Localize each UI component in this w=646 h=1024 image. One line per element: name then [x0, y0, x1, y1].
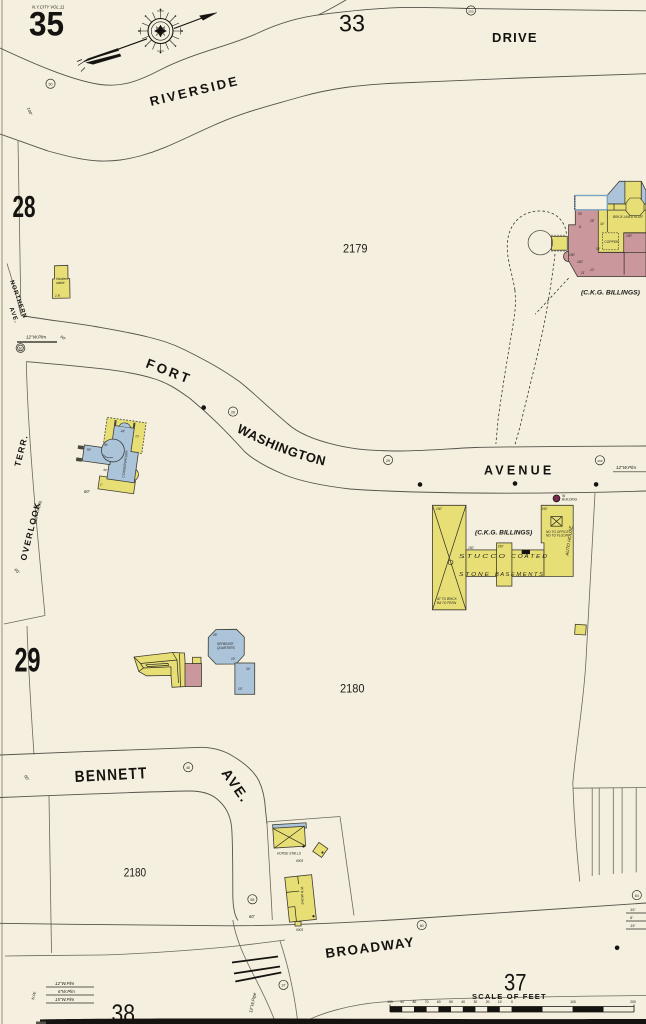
svg-text:35: 35 [29, 6, 64, 44]
svg-text:DRIVE: DRIVE [492, 30, 538, 45]
svg-text:2180: 2180 [340, 682, 365, 696]
svg-text:29: 29 [15, 642, 41, 680]
svg-text:28': 28' [589, 219, 595, 223]
svg-text:QUARTERS: QUARTERS [217, 646, 236, 650]
svg-text:10': 10' [231, 657, 236, 661]
svg-text:2179: 2179 [343, 242, 368, 256]
svg-text:6"W.Plm: 6"W.Plm [58, 989, 75, 994]
svg-text:12': 12' [590, 268, 595, 272]
svg-text:SCALE OF FEET: SCALE OF FEET [472, 992, 547, 1001]
svg-text:209: 209 [597, 459, 602, 463]
svg-text:10': 10' [238, 687, 243, 691]
svg-text:1 R: 1 R [55, 294, 61, 298]
svg-text:60': 60' [249, 914, 255, 919]
svg-text:150': 150' [468, 546, 474, 550]
svg-text:10: 10 [498, 1000, 502, 1004]
svg-text:150': 150' [436, 507, 442, 511]
svg-text:60: 60 [437, 1000, 441, 1004]
svg-text:0: 0 [511, 1000, 513, 1004]
svg-text:11': 11' [581, 271, 585, 275]
svg-text:50: 50 [49, 83, 53, 87]
svg-text:BA TO PENN: BA TO PENN [437, 601, 457, 605]
svg-text:COPPER: COPPER [604, 240, 619, 244]
svg-text:34': 34' [600, 222, 605, 226]
svg-text:12"W.Plm: 12"W.Plm [26, 335, 46, 340]
svg-text:6': 6' [630, 915, 633, 920]
svg-text:28': 28' [119, 429, 125, 434]
svg-text:40: 40 [186, 766, 190, 770]
svg-text:C O A T E D: C O A T E D [511, 554, 547, 560]
svg-text:NO TO FLOOR: NO TO FLOOR [546, 534, 569, 538]
svg-text:150': 150' [498, 545, 504, 549]
svg-text:(C.K.G. BILLINGS): (C.K.G. BILLINGS) [581, 290, 641, 297]
svg-text:60': 60' [84, 489, 90, 494]
svg-text:150': 150' [569, 253, 575, 257]
svg-text:37: 37 [282, 984, 286, 988]
svg-text:100: 100 [387, 1000, 393, 1004]
svg-text:150': 150' [577, 260, 583, 264]
svg-text:30: 30 [474, 1000, 478, 1004]
svg-text:(C.K.G. BILLINGS): (C.K.G. BILLINGS) [475, 530, 532, 537]
svg-text:200: 200 [630, 1000, 636, 1004]
svg-text:34': 34' [596, 247, 601, 251]
svg-text:26: 26 [231, 410, 235, 414]
svg-text:BRICK LINED ROOF: BRICK LINED ROOF [613, 215, 644, 219]
svg-text:HORSE STALLS: HORSE STALLS [277, 852, 302, 856]
svg-text:70: 70 [425, 1000, 429, 1004]
svg-text:50': 50' [578, 212, 583, 216]
svg-text:BUILDING: BUILDING [562, 497, 578, 501]
svg-text:20: 20 [486, 1000, 490, 1004]
svg-text:S T O N E: S T O N E [459, 572, 489, 578]
svg-text:29: 29 [386, 459, 390, 463]
svg-text:12"W.Plm: 12"W.Plm [616, 465, 636, 470]
svg-text:60: 60 [19, 347, 23, 351]
svg-text:34': 34' [246, 667, 251, 671]
svg-text:80: 80 [413, 1000, 417, 1004]
svg-text:28: 28 [13, 189, 36, 224]
svg-text:250: 250 [468, 9, 473, 13]
svg-text:60: 60 [420, 924, 424, 928]
svg-text:6005: 6005 [296, 859, 303, 863]
svg-text:40: 40 [461, 1000, 465, 1004]
svg-text:64: 64 [635, 894, 639, 898]
svg-text:28': 28' [212, 633, 218, 637]
svg-text:SHOW R.M.: SHOW R.M. [300, 886, 305, 905]
svg-text:6005: 6005 [296, 928, 303, 932]
svg-text:150': 150' [626, 234, 632, 238]
svg-text:B A S E M E N T S: B A S E M E N T S [495, 572, 543, 578]
svg-text:90: 90 [400, 1000, 404, 1004]
svg-text:2180: 2180 [124, 866, 147, 880]
svg-text:15"W.Plm: 15"W.Plm [55, 997, 75, 1002]
svg-text:50: 50 [449, 1000, 453, 1004]
svg-text:100: 100 [570, 1000, 576, 1004]
svg-text:stable: stable [56, 281, 65, 285]
svg-text:12"W.Plm: 12"W.Plm [55, 981, 75, 986]
svg-text:15': 15' [630, 907, 635, 912]
svg-text:150': 150' [542, 507, 548, 511]
svg-text:S T U C C O: S T U C C O [459, 554, 506, 560]
svg-text:15': 15' [630, 923, 635, 928]
svg-text:AVENUE: AVENUE [484, 464, 554, 478]
svg-text:55: 55 [250, 898, 254, 902]
svg-text:33: 33 [339, 11, 365, 38]
